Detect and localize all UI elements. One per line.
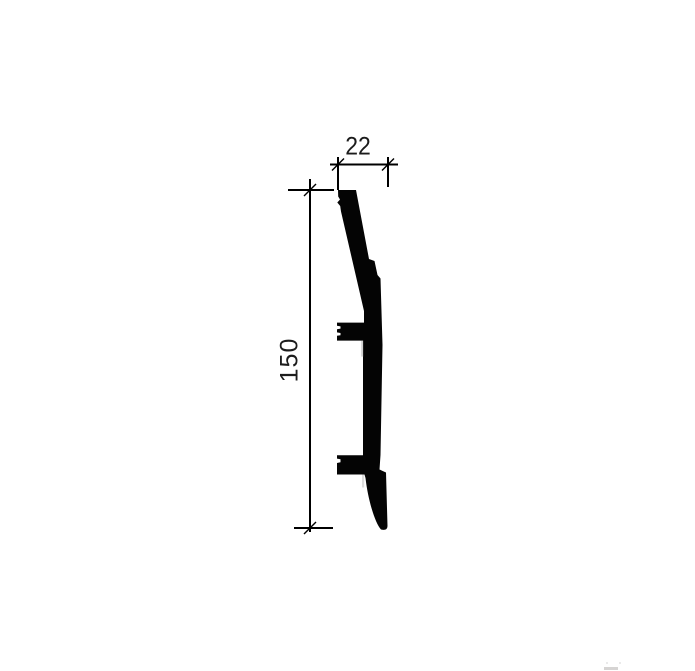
profile-silhouette xyxy=(337,190,388,530)
fin-shadow-lower xyxy=(362,475,364,488)
profile-drawing xyxy=(0,0,695,671)
height-dimension-label: 150 xyxy=(276,338,305,383)
watermark-fragment-bottom xyxy=(604,667,618,670)
width-dimension xyxy=(330,157,398,190)
watermark-fragment xyxy=(603,661,621,671)
watermark-fragment-top xyxy=(606,662,621,664)
width-dimension-label: 22 xyxy=(345,133,371,162)
fin-shadow-upper xyxy=(361,341,363,357)
drawing-canvas: 22 150 xyxy=(0,0,695,671)
